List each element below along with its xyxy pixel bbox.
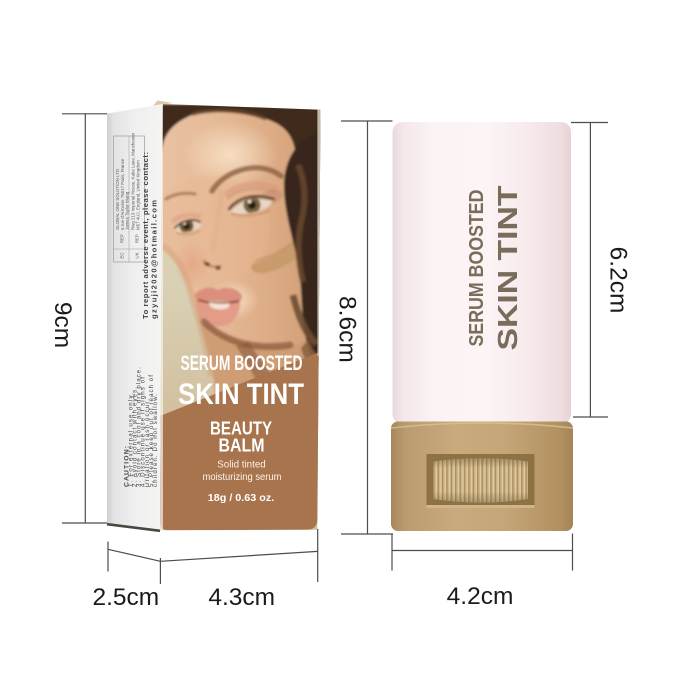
svg-text:To report adverse event, pleas: To report adverse event, please contact: <box>141 152 150 319</box>
svg-text:BALM: BALM <box>219 435 265 456</box>
svg-text:4.3cm: 4.3cm <box>208 584 275 611</box>
svg-text:4.2cm: 4.2cm <box>447 583 514 610</box>
svg-text:REP: REP <box>135 234 140 243</box>
svg-text:SERUM BOOSTED: SERUM BOOSTED <box>181 352 303 375</box>
svg-text:8.6cm: 8.6cm <box>334 296 361 363</box>
svg-text:M57 4UJ, England, United Kingd: M57 4UJ, England, United Kingdom <box>136 160 141 230</box>
svg-text:SKIN TINT: SKIN TINT <box>178 378 304 411</box>
svg-text:EC: EC <box>120 252 125 259</box>
svg-text:James Taylor Wang: James Taylor Wang <box>124 191 129 230</box>
svg-text:2.5cm: 2.5cm <box>92 584 159 611</box>
svg-text:SKIN TINT: SKIN TINT <box>492 186 523 351</box>
svg-text:6.2cm: 6.2cm <box>605 247 632 314</box>
svg-text:SERUM BOOSTED: SERUM BOOSTED <box>466 190 488 347</box>
svg-text:UK: UK <box>135 252 140 258</box>
svg-text:Solid tinted: Solid tinted <box>217 460 266 471</box>
svg-text:18g / 0.63 oz.: 18g / 0.63 oz. <box>208 493 275 504</box>
svg-text:REP: REP <box>120 234 125 243</box>
svg-text:moisturizing serum: moisturizing serum <box>203 472 282 483</box>
svg-text:children. Do not swallow.: children. Do not swallow. <box>152 394 159 487</box>
svg-text:9cm: 9cm <box>49 302 76 348</box>
